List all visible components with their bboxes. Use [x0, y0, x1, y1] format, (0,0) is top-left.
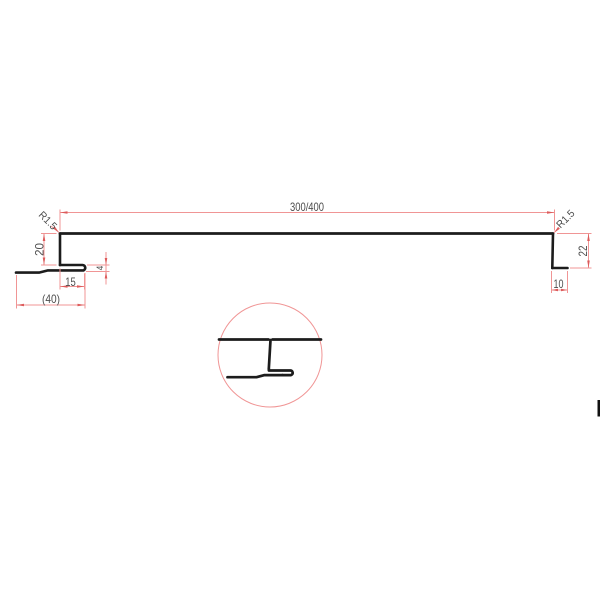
svg-text:10: 10	[554, 277, 564, 291]
svg-text:22: 22	[576, 245, 590, 256]
svg-text:4: 4	[95, 266, 105, 271]
svg-text:15: 15	[65, 275, 76, 289]
svg-text:(40): (40)	[42, 292, 60, 306]
svg-text:20: 20	[33, 243, 47, 256]
svg-text:300/400: 300/400	[290, 200, 324, 214]
